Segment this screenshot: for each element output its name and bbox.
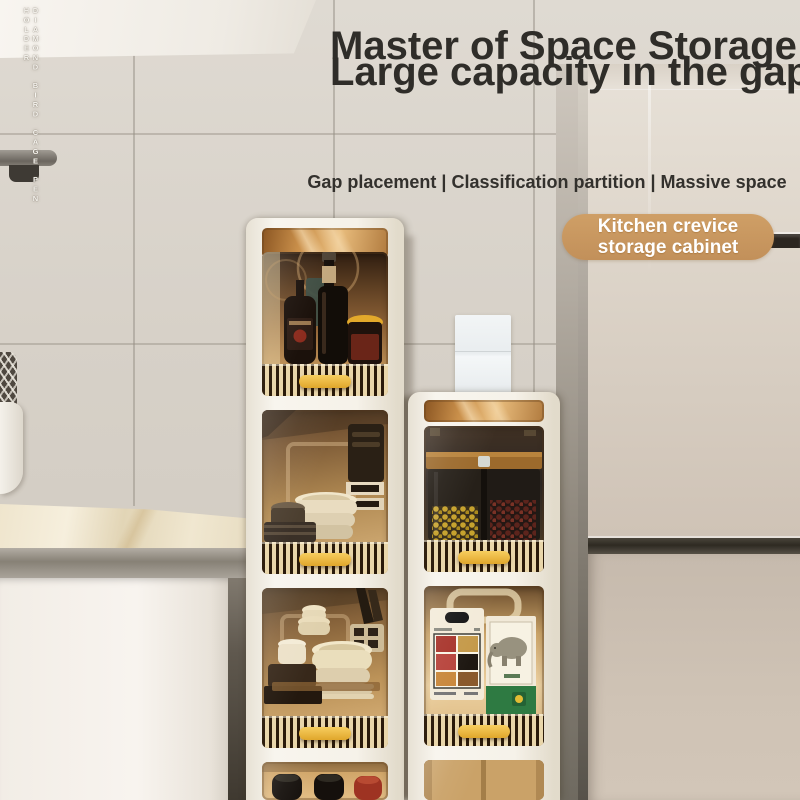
jar-lids-illustration bbox=[262, 762, 388, 800]
sauce-bottles-illustration bbox=[262, 252, 388, 364]
wall-paper-sheet bbox=[455, 315, 511, 395]
counter-metal-trim bbox=[0, 548, 250, 578]
product-badge: Kitchen crevice storage cabinet bbox=[562, 214, 774, 260]
tall-cabinet-section-dishes bbox=[262, 588, 388, 748]
drawer-handle bbox=[299, 727, 351, 740]
dishes-illustration bbox=[262, 588, 388, 716]
scene: DIAMOND BIRD CAGE PEN HOLDER Master of S… bbox=[0, 0, 800, 800]
badge-line-2: storage cabinet bbox=[562, 237, 774, 258]
tall-storage-cabinet bbox=[246, 218, 404, 800]
tall-cabinet-section-bowls bbox=[262, 410, 388, 574]
fridge-lower-door bbox=[588, 554, 800, 800]
drawer-handle bbox=[299, 375, 351, 388]
tile-grout-line bbox=[0, 133, 556, 135]
cabinet-lid-window bbox=[424, 400, 544, 422]
watermark-text: DIAMOND BIRD CAGE PEN HOLDER bbox=[22, 6, 40, 226]
drawer-handle bbox=[458, 551, 510, 564]
counter-cabinet-door bbox=[0, 578, 228, 800]
badge-line-1: Kitchen crevice bbox=[562, 216, 774, 237]
bowls-illustration bbox=[262, 410, 388, 542]
range-hood bbox=[0, 0, 316, 58]
fridge-door-groove bbox=[588, 538, 800, 554]
grain-containers-illustration bbox=[424, 426, 544, 540]
short-cabinet-section-packages bbox=[424, 586, 544, 746]
vent-grille bbox=[262, 364, 388, 396]
short-cabinet-section-grains bbox=[424, 426, 544, 572]
vent-grille bbox=[262, 716, 388, 748]
subheadline: Gap placement | Classification partition… bbox=[288, 172, 800, 193]
tall-cabinet-section-bottles bbox=[262, 252, 388, 396]
tile-grout-line bbox=[133, 0, 135, 506]
vent-grille bbox=[262, 542, 388, 574]
tall-cabinet-section-jars bbox=[262, 762, 388, 800]
short-storage-cabinet bbox=[408, 392, 560, 800]
drawer-handle bbox=[299, 553, 351, 566]
cabinet-wall-shadow bbox=[404, 236, 414, 396]
countertop-marble bbox=[0, 504, 272, 550]
short-cabinet-section-empty bbox=[424, 760, 544, 800]
utensil-cup bbox=[0, 402, 23, 494]
drawer-handle bbox=[458, 725, 510, 738]
vent-grille bbox=[424, 714, 544, 746]
empty-interior-illustration bbox=[424, 760, 544, 800]
headline-line-2: Large capacity in the gap bbox=[330, 50, 800, 95]
food-packages-illustration bbox=[424, 586, 544, 714]
vent-grille bbox=[424, 540, 544, 572]
